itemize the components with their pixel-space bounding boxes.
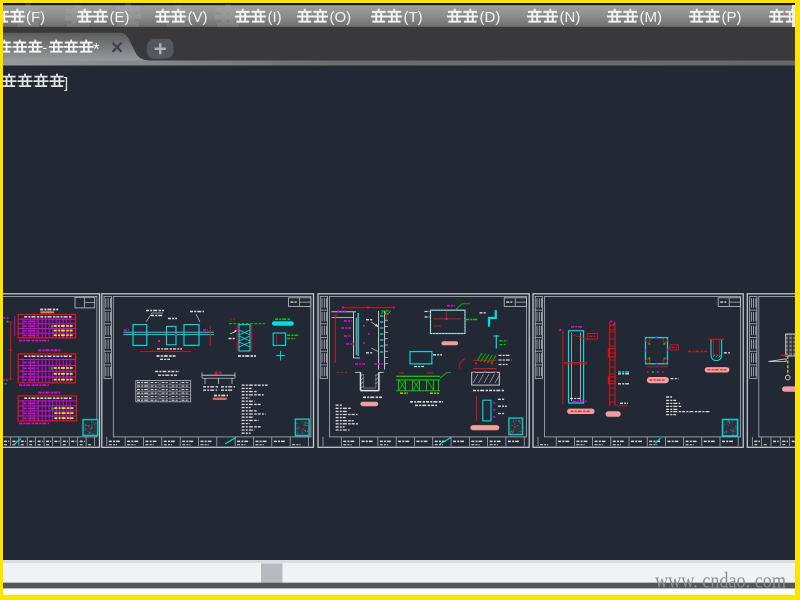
svg-text:(T): (T): [404, 9, 423, 26]
svg-text:(I): (I): [268, 9, 282, 26]
svg-text:(V): (V): [188, 9, 208, 26]
svg-text:-: -: [43, 39, 48, 55]
svg-text:(N): (N): [560, 9, 581, 26]
svg-text:www. cndao. com: www. cndao. com: [655, 568, 786, 593]
svg-text:*: *: [93, 40, 100, 59]
svg-text:(M): (M): [640, 9, 663, 26]
svg-text:(E): (E): [110, 9, 130, 26]
svg-text:(O): (O): [330, 9, 352, 26]
svg-text:(D): (D): [480, 9, 501, 26]
svg-text:(P): (P): [722, 9, 742, 26]
svg-text:(F): (F): [26, 9, 45, 26]
svg-text:]: ]: [64, 75, 68, 92]
